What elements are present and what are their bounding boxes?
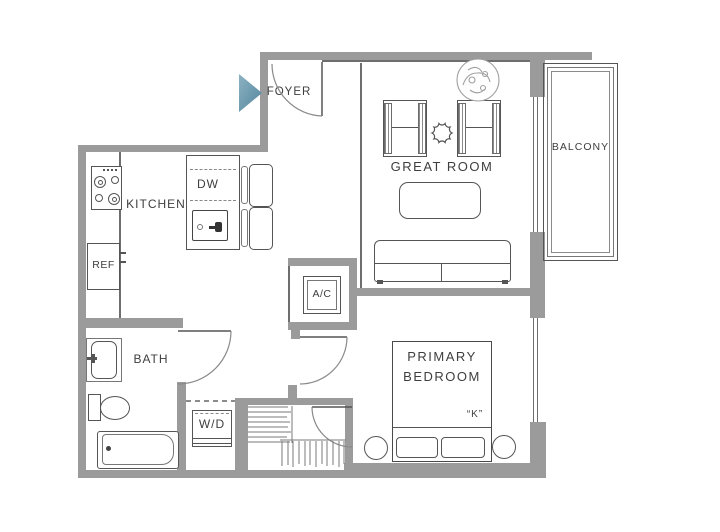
sink-drain (197, 224, 203, 230)
sofa-foot (377, 280, 383, 284)
pillow (396, 437, 438, 458)
floor-plan: REF DW KITCHEN FOYER GREAT ROOM BALCONY … (0, 0, 720, 532)
kitchen-label: KITCHEN (126, 197, 186, 211)
refrigerator-label: REF (88, 259, 119, 271)
sofa-cushion-divider (441, 263, 442, 282)
bedroom-window-glass-line (537, 318, 538, 422)
nightstand (364, 436, 388, 460)
burner-ring (112, 197, 117, 202)
refrigerator-handle (120, 261, 126, 263)
primary-bedroom-label-line1: PRIMARY (392, 349, 492, 364)
armchair-arm (384, 103, 392, 154)
primary-bedroom-label-line2: BEDROOM (392, 369, 492, 384)
wall-greatroom-bedroom-divider (349, 288, 541, 296)
bath-label: BATH (128, 352, 174, 366)
bath-faucet (92, 354, 95, 363)
ac-label: A/C (307, 288, 337, 300)
great-room-label: GREAT ROOM (378, 159, 506, 174)
closet-hatch-left (248, 406, 292, 443)
balcony-railing-inner (551, 71, 610, 253)
wall-foyer-west (260, 58, 268, 152)
sofa (374, 240, 511, 282)
sofa-foot (502, 280, 508, 284)
island-counter-dash (190, 200, 236, 201)
wall-bath-north (85, 318, 183, 328)
armchair-arm (492, 103, 500, 154)
wall-bottom-right (344, 463, 546, 478)
burner (111, 176, 119, 184)
top-wall-inner-face (322, 60, 530, 62)
wall-left-exterior (78, 145, 86, 478)
balcony-door-glass-line (537, 97, 538, 232)
coffee-table (399, 182, 481, 219)
stove-knobs (103, 169, 119, 171)
closet-hatch-bottom (280, 440, 346, 467)
armchair-seat-line (392, 127, 418, 128)
wall-hall-south (243, 398, 352, 405)
burner-ring (98, 180, 103, 185)
stool-seat (249, 164, 273, 207)
wall-top-exterior (260, 52, 592, 60)
wall-closet-west (235, 398, 248, 477)
armchair-arm (458, 103, 466, 154)
burner (95, 194, 103, 202)
armchair-seat-line (466, 127, 492, 128)
balcony-label: BALCONY (545, 141, 616, 153)
island-counter-dash (190, 169, 236, 170)
bathtub-drain (106, 446, 111, 451)
bedroom-window-glass-line (533, 318, 534, 422)
washer-dryer-dash (195, 413, 229, 414)
nightstand (492, 435, 516, 459)
sofa-seat-line (375, 263, 510, 264)
washer-dryer-label: W/D (192, 417, 232, 431)
stool-back (241, 209, 248, 247)
wall-ac-east (349, 258, 357, 330)
balcony-door-glass-line (533, 97, 534, 232)
entry-arrow-icon (239, 74, 262, 112)
ac-closet-louver-door (288, 266, 290, 322)
dishwasher-label: DW (188, 177, 228, 191)
sink-faucet (215, 222, 222, 232)
bedroom-door-swing (300, 337, 347, 384)
stool-back (241, 166, 248, 204)
bed-size-label: “K” (460, 409, 490, 420)
wall-bedroom-stub-upper (291, 322, 300, 339)
wall-kitchen-top (78, 145, 267, 152)
plant-icon (457, 59, 499, 101)
side-table-icon (432, 124, 452, 143)
wall-closet-east (345, 398, 353, 478)
washer-dryer-line (193, 438, 231, 439)
washer-dryer-line (193, 443, 231, 444)
toilet-bowl (100, 396, 130, 420)
bathtub-inner (102, 434, 174, 465)
foyer-label: FOYER (266, 86, 312, 98)
sink-faucet-spout (209, 226, 216, 229)
wall-ac-north (288, 258, 357, 266)
stool-seat (249, 207, 273, 250)
bed-fold-line (393, 427, 491, 428)
greatroom-west-line (360, 63, 362, 288)
wall-bottom-left (78, 470, 355, 478)
bath-door-swing (178, 331, 231, 384)
pillow (441, 437, 485, 458)
armchair-arm (418, 103, 426, 154)
refrigerator-handle (120, 252, 126, 254)
